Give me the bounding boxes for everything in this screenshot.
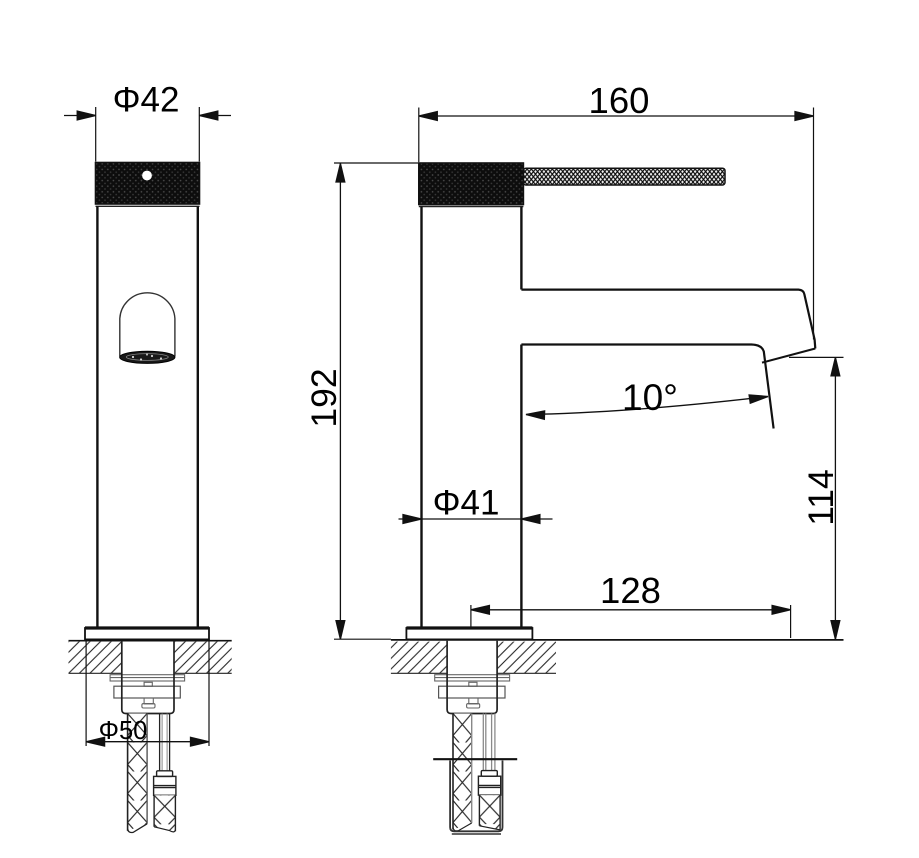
svg-text:114: 114: [801, 469, 841, 526]
svg-text:128: 128: [600, 570, 661, 611]
svg-text:Φ42: Φ42: [113, 81, 180, 120]
svg-text:192: 192: [304, 368, 344, 427]
svg-text:Φ41: Φ41: [433, 484, 500, 523]
svg-text:10°: 10°: [622, 377, 678, 418]
svg-text:Φ50: Φ50: [99, 717, 148, 745]
svg-text:160: 160: [589, 80, 650, 121]
